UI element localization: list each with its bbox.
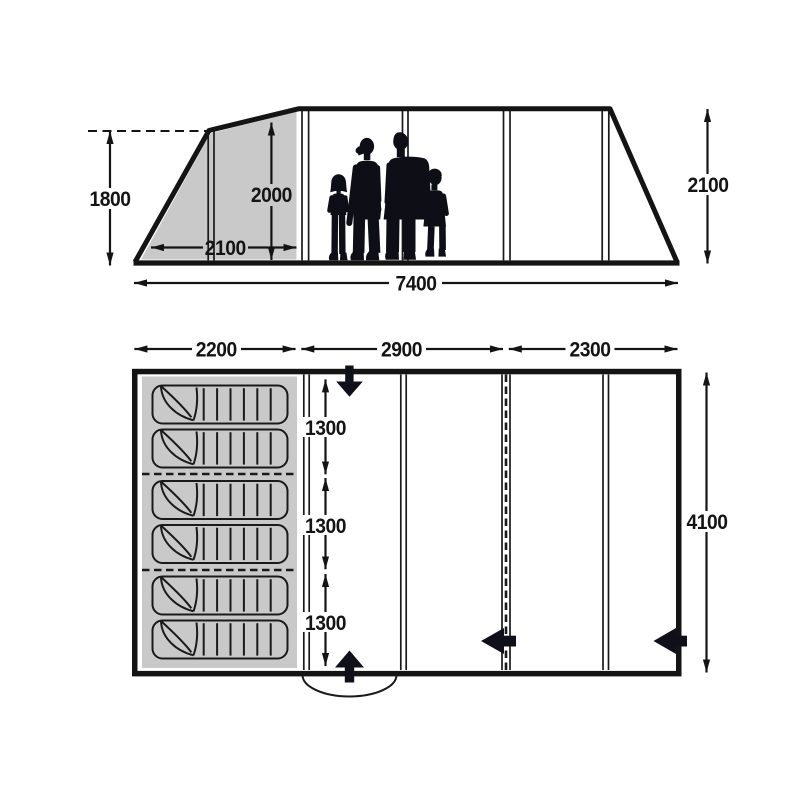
svg-text:2300: 2300 [570,339,611,362]
svg-text:1300: 1300 [305,417,346,440]
svg-text:2200: 2200 [196,339,237,362]
svg-text:2100: 2100 [205,237,246,260]
svg-text:1300: 1300 [305,612,346,635]
svg-text:7400: 7400 [396,273,437,296]
svg-text:4100: 4100 [687,511,728,534]
svg-text:1300: 1300 [305,515,346,538]
svg-text:2000: 2000 [251,184,292,207]
svg-text:2900: 2900 [381,339,422,362]
svg-text:2100: 2100 [688,174,729,197]
svg-text:1800: 1800 [90,188,131,211]
